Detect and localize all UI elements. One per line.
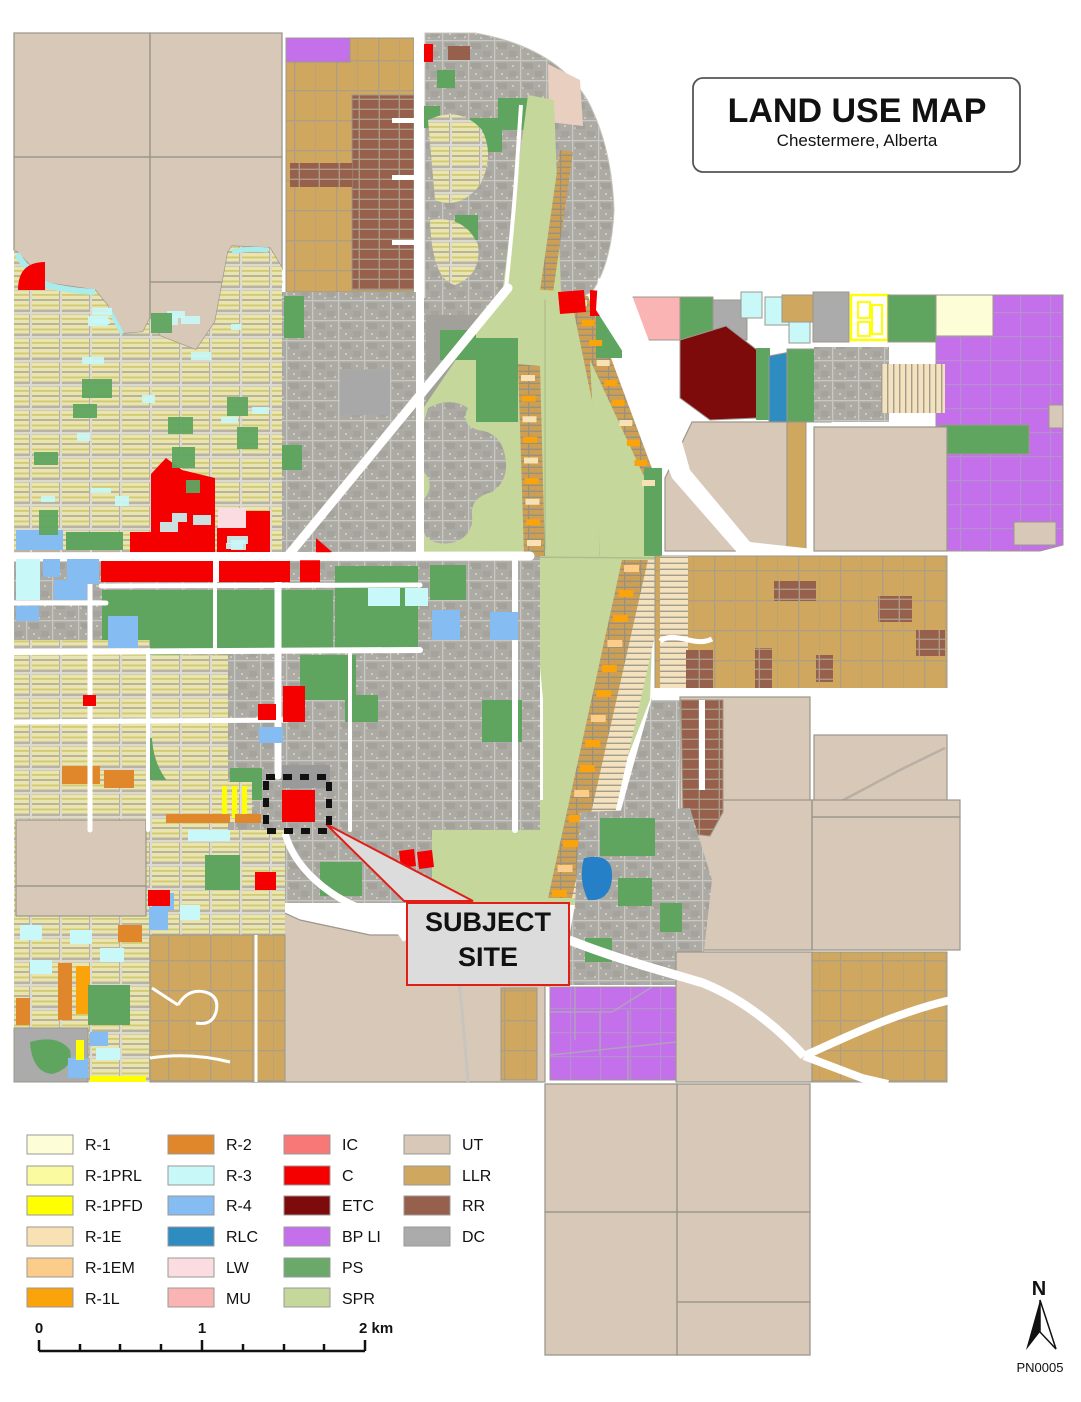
svg-text:LW: LW bbox=[226, 1260, 250, 1277]
svg-text:SITE: SITE bbox=[458, 942, 518, 972]
svg-text:R-4: R-4 bbox=[226, 1198, 252, 1215]
svg-text:SUBJECT: SUBJECT bbox=[425, 907, 552, 937]
svg-text:R-1PRL: R-1PRL bbox=[85, 1168, 142, 1185]
svg-text:MU: MU bbox=[226, 1291, 251, 1308]
svg-text:C: C bbox=[342, 1168, 354, 1185]
svg-text:UT: UT bbox=[462, 1137, 484, 1154]
svg-text:1: 1 bbox=[198, 1320, 206, 1337]
svg-text:IC: IC bbox=[342, 1137, 358, 1154]
svg-text:2 km: 2 km bbox=[359, 1320, 393, 1337]
svg-text:LAND USE MAP: LAND USE MAP bbox=[728, 92, 987, 130]
svg-text:R-1PFD: R-1PFD bbox=[85, 1198, 143, 1215]
svg-text:R-1L: R-1L bbox=[85, 1291, 120, 1308]
svg-text:RLC: RLC bbox=[226, 1229, 258, 1246]
svg-text:DC: DC bbox=[462, 1229, 485, 1246]
svg-text:BP LI: BP LI bbox=[342, 1229, 381, 1246]
svg-text:ETC: ETC bbox=[342, 1198, 374, 1215]
svg-text:N: N bbox=[1032, 1278, 1046, 1300]
svg-text:SPR: SPR bbox=[342, 1291, 375, 1308]
svg-text:PS: PS bbox=[342, 1260, 363, 1277]
svg-text:R-3: R-3 bbox=[226, 1168, 252, 1185]
svg-text:RR: RR bbox=[462, 1198, 485, 1215]
svg-text:R-1E: R-1E bbox=[85, 1229, 121, 1246]
svg-text:R-1EM: R-1EM bbox=[85, 1260, 135, 1277]
svg-text:R-2: R-2 bbox=[226, 1137, 252, 1154]
svg-text:0: 0 bbox=[35, 1320, 43, 1337]
svg-text:LLR: LLR bbox=[462, 1168, 491, 1185]
svg-text:R-1: R-1 bbox=[85, 1137, 111, 1154]
svg-text:PN0005: PN0005 bbox=[1017, 1360, 1064, 1375]
svg-text:Chestermere, Alberta: Chestermere, Alberta bbox=[777, 131, 938, 150]
